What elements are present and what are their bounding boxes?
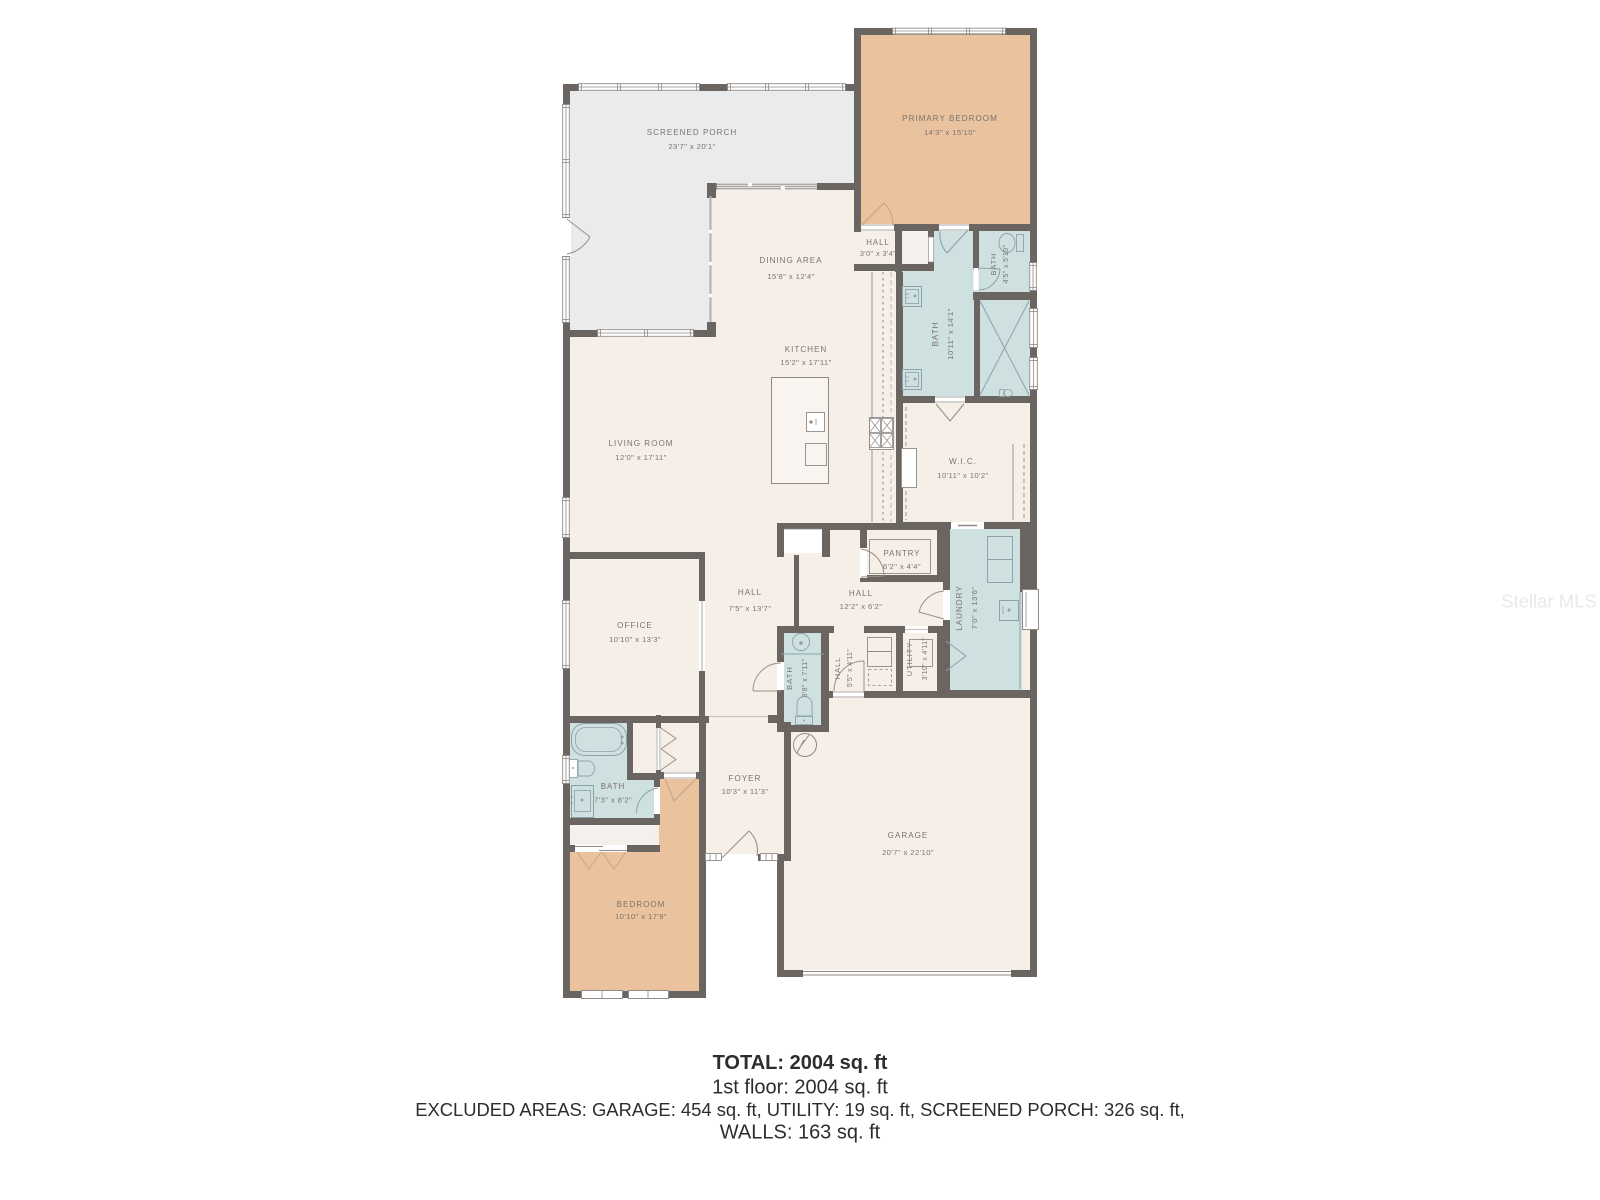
svg-text:7'3" x 8'2": 7'3" x 8'2" [594, 796, 632, 805]
svg-text:12'2" x 6'2": 12'2" x 6'2" [840, 602, 883, 611]
svg-text:PRIMARY BEDROOM: PRIMARY BEDROOM [902, 114, 998, 123]
svg-text:10'11" x 10'2": 10'11" x 10'2" [937, 471, 988, 480]
svg-text:15'8" x 12'4": 15'8" x 12'4" [767, 272, 814, 281]
svg-text:7'5" x 13'7": 7'5" x 13'7" [729, 604, 772, 613]
svg-text:10'10" x 13'3": 10'10" x 13'3" [609, 635, 661, 644]
svg-text:HALL: HALL [738, 588, 762, 597]
svg-text:3'0" x 3'4": 3'0" x 3'4" [860, 249, 896, 258]
svg-text:LAUNDRY: LAUNDRY [955, 585, 964, 631]
svg-text:FOYER: FOYER [729, 774, 762, 783]
svg-text:HALL: HALL [866, 238, 890, 247]
svg-text:PANTRY: PANTRY [884, 549, 921, 558]
svg-text:BEDROOM: BEDROOM [617, 900, 666, 909]
svg-text:BATH: BATH [989, 253, 998, 276]
svg-text:6'2" x 4'4": 6'2" x 4'4" [883, 562, 921, 571]
svg-text:20'7" x 22'10": 20'7" x 22'10" [882, 848, 934, 857]
svg-text:15'2" x 17'11": 15'2" x 17'11" [780, 358, 831, 367]
svg-text:W.I.C.: W.I.C. [949, 457, 977, 466]
svg-text:14'3" x 15'10": 14'3" x 15'10" [924, 128, 976, 137]
svg-text:KITCHEN: KITCHEN [785, 345, 828, 354]
svg-text:WALLS: 163 sq. ft: WALLS: 163 sq. ft [720, 1122, 881, 1144]
svg-text:UTILITY: UTILITY [905, 642, 914, 677]
svg-text:BATH: BATH [931, 322, 940, 347]
svg-text:OFFICE: OFFICE [617, 621, 653, 630]
svg-text:GARAGE: GARAGE [888, 831, 929, 840]
svg-text:DINING AREA: DINING AREA [759, 256, 822, 265]
svg-text:10'11" x 14'1": 10'11" x 14'1" [946, 308, 955, 359]
svg-text:3'8" x 7'11": 3'8" x 7'11" [802, 658, 809, 697]
svg-text:5'5" x 4'11": 5'5" x 4'11" [847, 649, 854, 687]
svg-text:EXCLUDED AREAS: GARAGE: 454 sq: EXCLUDED AREAS: GARAGE: 454 sq. ft, UTIL… [415, 1099, 1185, 1120]
svg-text:BATH: BATH [601, 782, 625, 791]
svg-text:12'0" x 17'11": 12'0" x 17'11" [615, 453, 666, 462]
svg-text:23'7" x 20'1": 23'7" x 20'1" [668, 142, 715, 151]
svg-text:HALL: HALL [833, 657, 842, 680]
svg-text:1st floor: 2004 sq. ft: 1st floor: 2004 sq. ft [712, 1077, 888, 1099]
svg-text:4'5" x 5'10": 4'5" x 5'10" [1003, 244, 1010, 283]
svg-text:Stellar MLS: Stellar MLS [1501, 591, 1597, 612]
svg-text:3'10" x 4'11": 3'10" x 4'11" [922, 638, 929, 681]
svg-text:TOTAL: 2004 sq. ft: TOTAL: 2004 sq. ft [713, 1052, 888, 1074]
svg-text:10'3" x 11'3": 10'3" x 11'3" [722, 787, 769, 796]
svg-text:7'0" x 13'6": 7'0" x 13'6" [970, 587, 979, 630]
svg-text:HALL: HALL [849, 589, 873, 598]
svg-text:10'10" x 17'9": 10'10" x 17'9" [615, 912, 667, 921]
svg-text:BATH: BATH [785, 666, 794, 690]
svg-text:LIVING ROOM: LIVING ROOM [609, 439, 674, 448]
svg-text:SCREENED PORCH: SCREENED PORCH [647, 128, 737, 137]
